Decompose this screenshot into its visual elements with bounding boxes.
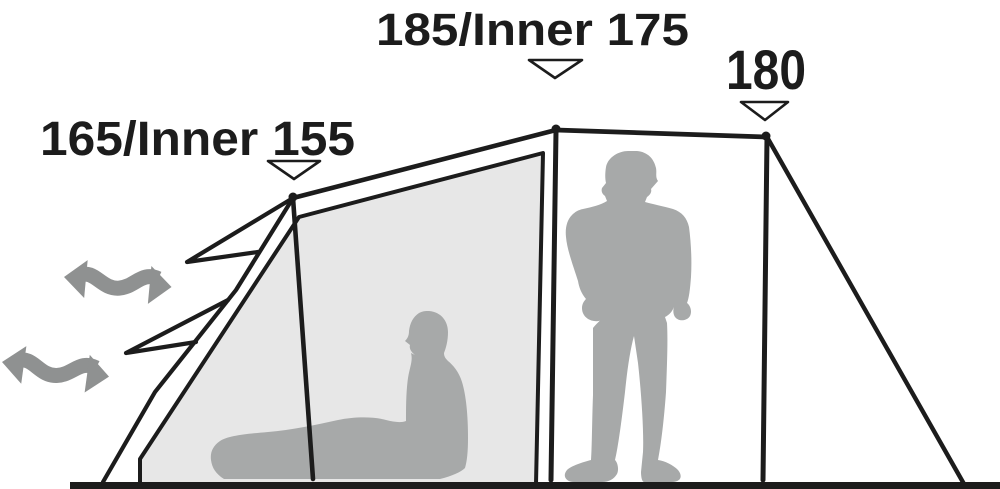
svg-text:185/Inner 175: 185/Inner 175 <box>376 4 689 55</box>
svg-text:180: 180 <box>726 38 806 101</box>
svg-text:165/Inner 155: 165/Inner 155 <box>40 113 355 166</box>
